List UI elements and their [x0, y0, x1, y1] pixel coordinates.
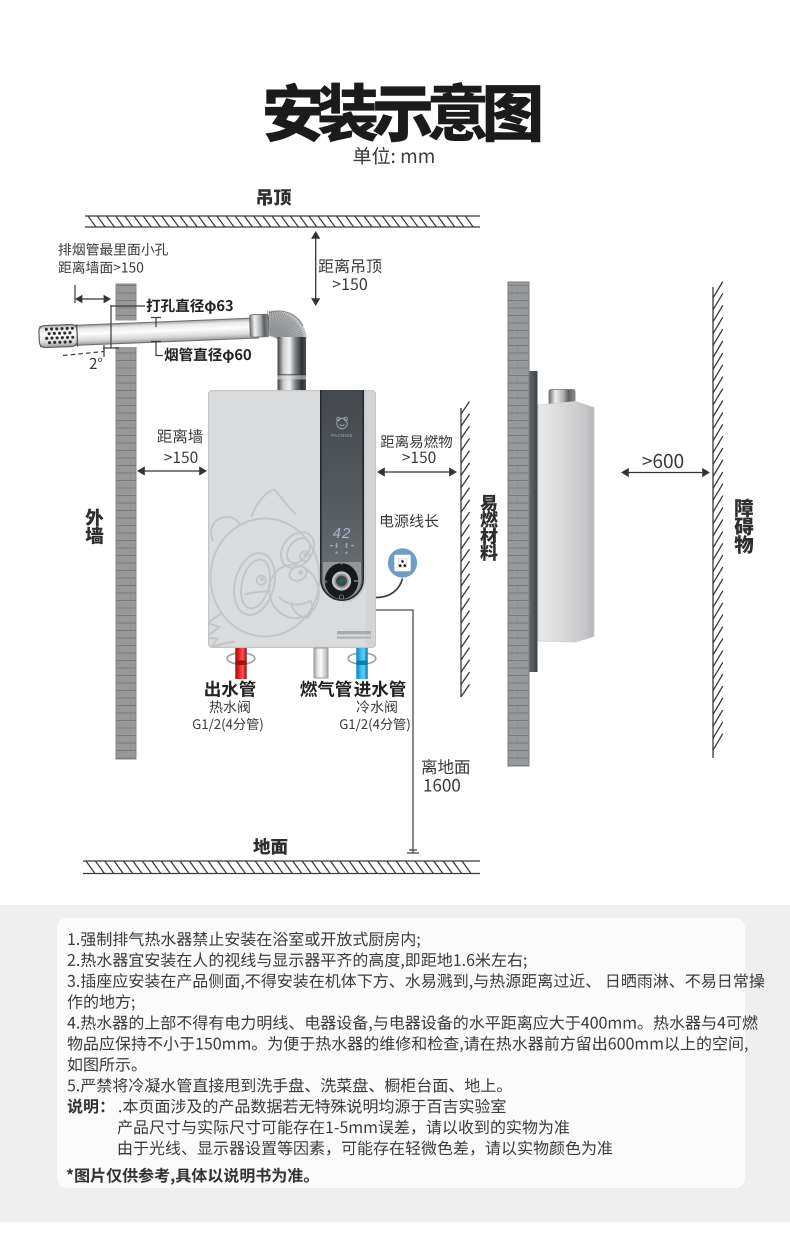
svg-text:+: +: [324, 577, 329, 586]
svg-text:42: 42: [333, 525, 352, 542]
svg-text:PACNISS: PACNISS: [331, 433, 353, 438]
